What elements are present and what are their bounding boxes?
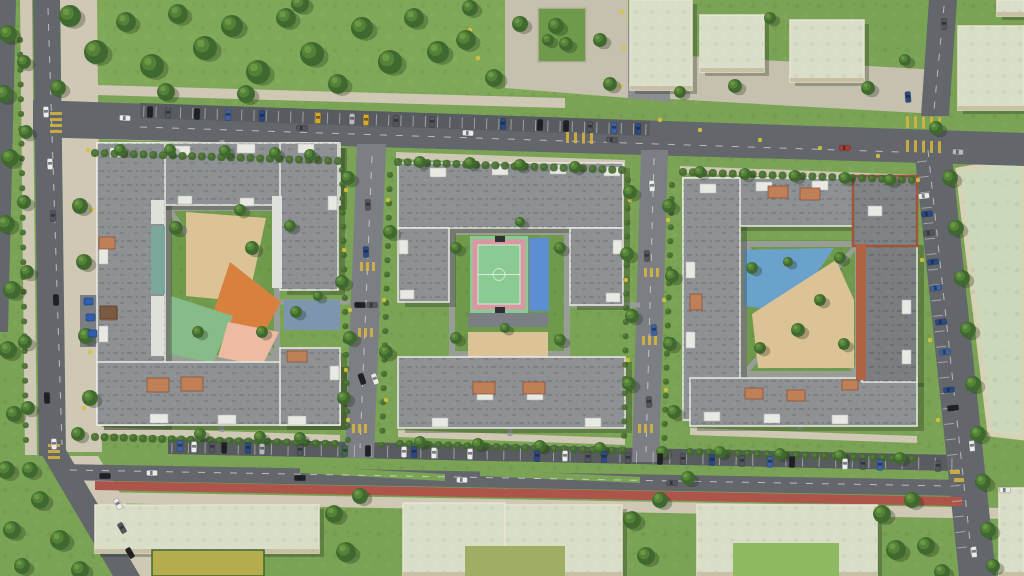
car [939, 349, 951, 356]
hedge-bush-highlight [697, 449, 701, 453]
car-windshield [466, 131, 469, 135]
tree-canopy-highlight [488, 72, 493, 77]
car [194, 108, 200, 119]
tree-canopy-highlight [286, 222, 290, 226]
tree-canopy-highlight [595, 35, 599, 39]
car-windshield [166, 111, 170, 114]
tree-canopy-highlight [957, 273, 962, 278]
hedge-bush-highlight [851, 454, 855, 458]
flower-bush [876, 154, 880, 158]
hedge-bush-highlight [384, 286, 387, 289]
hedge-bush-highlight [622, 419, 625, 422]
car-windshield [602, 455, 606, 458]
tree-canopy-highlight [627, 311, 631, 315]
tree-canopy-highlight [840, 340, 844, 344]
car-windshield [843, 146, 846, 150]
car-windshield [123, 116, 126, 120]
hedge-bush-highlight [274, 439, 278, 443]
flower-bush [818, 146, 822, 150]
car-windshield [366, 203, 370, 206]
tree-canopy-highlight [978, 477, 983, 482]
hedge-bush-highlight [131, 151, 135, 155]
hedge-bush-highlight [465, 443, 469, 447]
car-windshield [768, 460, 772, 463]
car-windshield [790, 460, 794, 463]
tree-canopy-highlight [730, 81, 734, 85]
hedge-bush-highlight [735, 451, 739, 455]
car [562, 450, 568, 461]
car [221, 442, 227, 453]
tree-canopy-highlight [339, 393, 343, 397]
pale-roof-texture [700, 15, 764, 72]
hedge-bush-highlight [609, 167, 613, 171]
hedge-bush-highlight [667, 253, 670, 256]
hedge-bush-highlight [668, 225, 671, 228]
yellow-road-marking [364, 328, 367, 337]
car [53, 294, 59, 305]
car [367, 302, 378, 308]
tree-canopy-highlight [166, 146, 170, 150]
tree-canopy-highlight [502, 325, 505, 328]
hedge-bush-highlight [189, 153, 193, 157]
tree-canopy-highlight [536, 442, 540, 446]
tree-canopy-highlight [452, 244, 456, 248]
tree-canopy-highlight [171, 223, 175, 227]
roof-texture [853, 176, 917, 246]
pale-roof-texture [630, 0, 692, 90]
car-windshield [358, 303, 361, 307]
tree-canopy-highlight [21, 127, 25, 131]
tree-canopy-highlight [863, 83, 867, 87]
hedge-bush-highlight [150, 152, 154, 156]
flower-bush [344, 368, 348, 372]
hedge-bush-highlight [20, 230, 23, 233]
car [47, 158, 53, 169]
tree-canopy-highlight [741, 170, 745, 174]
car [839, 145, 850, 151]
hedge-bush-highlight [819, 174, 823, 178]
hedge-bush-highlight [780, 172, 784, 176]
yellow-road-marking [938, 141, 941, 153]
tree-canopy-highlight [571, 163, 575, 167]
car-windshield [178, 444, 182, 447]
car [259, 443, 265, 454]
car-windshield [260, 114, 264, 117]
yellow-road-marking [364, 424, 367, 433]
tree-canopy-highlight [465, 3, 470, 8]
entrance-canopy [690, 294, 702, 310]
tree-canopy-highlight [88, 44, 95, 51]
car [393, 115, 399, 126]
flower-bush [346, 418, 350, 422]
car [147, 106, 153, 117]
hedge-bush-highlight [513, 445, 517, 449]
car-windshield [192, 445, 196, 448]
hedge-bush-highlight [687, 449, 691, 453]
hedge-bush-highlight [666, 309, 669, 312]
car-windshield [103, 474, 106, 478]
tree-canopy-highlight [596, 444, 600, 448]
hedge-bush-highlight [92, 150, 96, 154]
car-windshield [956, 150, 959, 154]
yellow-road-marking [644, 424, 647, 433]
car-windshield [468, 452, 472, 455]
roof-stair-core [178, 196, 192, 204]
hedge-bush-highlight [561, 165, 565, 169]
tree-canopy-highlight [625, 187, 629, 191]
car-windshield [538, 123, 542, 126]
hedge-bush-highlight [19, 112, 22, 115]
tree-canopy-highlight [343, 173, 347, 177]
hedge-bush-highlight [335, 158, 339, 162]
tree-canopy-highlight [271, 149, 275, 153]
car-windshield [612, 126, 616, 129]
hedge-bush-highlight [622, 448, 625, 451]
hedge-bush-highlight [405, 159, 409, 163]
flower-bush [758, 138, 762, 142]
car [456, 477, 467, 483]
facade-strip [272, 196, 282, 288]
hedge-bush-highlight [755, 451, 759, 455]
car [657, 453, 663, 464]
car [411, 446, 417, 457]
roof-stair-core [430, 168, 446, 177]
car-windshield [564, 124, 568, 127]
hedge-bush-highlight [23, 393, 26, 396]
car [44, 392, 50, 403]
hedge-bush-highlight [619, 167, 623, 171]
inner-court [733, 543, 839, 576]
car-windshield [710, 458, 714, 461]
tree-canopy-highlight [696, 168, 700, 172]
tree-canopy-highlight [836, 452, 840, 456]
roof-stair-core [700, 184, 716, 193]
tree-canopy-highlight [667, 271, 671, 275]
hedge-bush-highlight [453, 161, 457, 165]
car-windshield [588, 125, 592, 128]
car [363, 114, 369, 125]
tree-canopy-highlight [247, 243, 251, 247]
pale-roof-texture [958, 26, 1024, 110]
pale-roof-texture [95, 505, 319, 553]
hedge-bush-highlight [397, 441, 401, 445]
car [651, 324, 657, 335]
yellow-road-marking [650, 424, 653, 433]
hedge-bush-highlight [344, 381, 347, 384]
car-windshield [586, 455, 590, 458]
hedge-bush-highlight [23, 378, 26, 381]
hedge-bush-highlight [890, 455, 894, 459]
car-windshield [645, 254, 649, 257]
yellow-road-marking [574, 132, 577, 143]
yellow-road-marking [370, 328, 373, 337]
yellow-road-marking [372, 262, 375, 271]
roof-stair-core [902, 300, 911, 314]
roof-stair-core [764, 414, 780, 423]
tree-canopy-highlight [196, 430, 200, 434]
tree-canopy-highlight [551, 21, 556, 26]
hedge-bush-highlight [226, 438, 230, 442]
car-windshield [298, 476, 301, 480]
hedge-bush-highlight [346, 438, 349, 441]
car-windshield [936, 464, 940, 467]
roof-stair-core [99, 248, 108, 264]
tree-canopy-highlight [332, 77, 338, 83]
hedge-bush-highlight [22, 319, 25, 322]
yellow-road-marking [50, 112, 62, 115]
hedge-bush-highlight [434, 160, 438, 164]
car [935, 460, 941, 471]
hedge-bush-highlight [590, 166, 594, 170]
hedge-bush-highlight [541, 164, 545, 168]
flower-bush [662, 298, 666, 302]
tree-canopy-highlight [776, 450, 780, 454]
tree-canopy-highlight [664, 201, 668, 205]
tree-canopy-highlight [622, 249, 626, 253]
roof-stair-core [237, 144, 255, 153]
car [119, 115, 130, 121]
yellow-road-marking [648, 336, 651, 345]
hedge-bush-highlight [571, 446, 575, 450]
car [297, 444, 303, 455]
hedge-bush-highlight [625, 220, 628, 223]
yellow-road-marking [590, 133, 593, 144]
car [401, 446, 407, 457]
hedge-bush-highlight [668, 239, 671, 242]
yellow-road-marking [654, 336, 657, 345]
car-windshield [970, 444, 974, 447]
hedge-bush-highlight [383, 315, 386, 318]
hedge-bush-highlight [92, 434, 96, 438]
hedge-bush-highlight [21, 245, 24, 248]
hedge-bush-highlight [341, 224, 344, 227]
hedge-bush-highlight [664, 351, 667, 354]
car-windshield [972, 550, 976, 553]
inner-court [465, 546, 565, 576]
pale-facade-edge [997, 12, 1024, 16]
car [296, 125, 307, 131]
tree-canopy-highlight [416, 438, 420, 442]
tree-canopy-highlight [194, 328, 198, 332]
hedge-bush-highlight [236, 438, 240, 442]
yellow-road-marking [644, 268, 647, 277]
flower-bush [88, 350, 92, 354]
yellow-road-marking [642, 336, 645, 345]
tree-canopy-highlight [937, 567, 942, 572]
hedge-bush-highlight [381, 400, 384, 403]
tree-canopy-highlight [516, 161, 520, 165]
car-windshield [54, 298, 58, 301]
car-windshield [148, 110, 152, 113]
hedge-bush-highlight [494, 444, 498, 448]
hedge-bush-highlight [492, 162, 496, 166]
flower-bush [622, 46, 626, 50]
hedge-bush-highlight [664, 379, 667, 382]
tree-canopy-highlight [116, 146, 120, 150]
car-windshield [501, 122, 505, 125]
yellow-road-marking [360, 262, 363, 271]
car [467, 448, 473, 459]
car [952, 149, 963, 155]
hedge-bush-highlight [344, 352, 347, 355]
hedge-bush-highlight [626, 178, 629, 181]
car [177, 440, 183, 451]
car-windshield [460, 478, 463, 482]
car [635, 123, 641, 134]
tree-canopy-highlight [34, 494, 39, 499]
hedge-bush-highlight [666, 295, 669, 298]
car [363, 246, 369, 257]
car [429, 116, 435, 127]
car-windshield [195, 112, 199, 115]
hedge-bush-highlight [24, 438, 27, 441]
flower-bush [920, 258, 924, 262]
car [611, 122, 617, 133]
tree-canopy-highlight [81, 331, 86, 336]
roof-stair-core [288, 416, 306, 425]
tree-canopy-highlight [624, 379, 628, 383]
car [462, 130, 473, 136]
car-windshield [343, 449, 347, 452]
tree-canopy-highlight [63, 9, 70, 16]
car-windshield [364, 118, 368, 121]
tree-canopy-highlight [6, 284, 11, 289]
tree-canopy-highlight [951, 223, 956, 228]
hedge-bush-highlight [745, 451, 749, 455]
pale-roof-texture [999, 488, 1024, 576]
tree-canopy-highlight [53, 83, 58, 88]
yellow-road-marking [50, 124, 62, 127]
car [943, 387, 955, 394]
hedge-bush-highlight [706, 450, 710, 454]
hedge-bush-highlight [445, 443, 449, 447]
roof-texture [280, 143, 338, 290]
tree-canopy-highlight [816, 296, 820, 300]
flower-bush [82, 406, 86, 410]
tree-canopy-highlight [517, 219, 520, 222]
car [99, 473, 110, 479]
hedge-bush-highlight [436, 442, 440, 446]
pale-roof-texture [790, 20, 864, 82]
car [349, 113, 355, 124]
car-windshield [670, 481, 673, 485]
tree-canopy-highlight [676, 88, 680, 92]
yellow-road-marking [650, 268, 653, 277]
hedge-bush-highlight [284, 440, 288, 444]
entrance-canopy [800, 188, 820, 200]
hedge-bush-highlight [600, 166, 604, 170]
flower-bush [664, 388, 668, 392]
roof-texture [690, 378, 917, 426]
hedge-bush-highlight [238, 155, 242, 159]
hedge-bush-highlight [169, 436, 173, 440]
car [355, 302, 366, 308]
flower-bush [348, 308, 352, 312]
tree-canopy-highlight [973, 429, 978, 434]
car [50, 210, 56, 221]
tree-canopy-highlight [460, 33, 466, 39]
car-windshield [563, 454, 567, 457]
car [969, 440, 976, 452]
hedge-bush-highlight [20, 171, 23, 174]
tree-canopy-highlight [381, 347, 385, 351]
hedge-bush-highlight [590, 447, 594, 451]
roof-stair-core [868, 206, 882, 216]
hedge-bush-highlight [340, 182, 343, 185]
car-windshield [222, 446, 226, 449]
car-windshield [432, 451, 436, 454]
hedge-bush-highlight [624, 263, 627, 266]
car [941, 18, 947, 29]
car-windshield [394, 119, 398, 122]
yellow-road-marking [954, 478, 964, 482]
yellow-road-marking [656, 268, 659, 277]
hedge-bush-highlight [561, 446, 565, 450]
tree-canopy-highlight [896, 454, 900, 458]
tree-canopy-highlight [561, 39, 565, 43]
tree-canopy-highlight [968, 379, 973, 384]
hedge-bush-highlight [385, 244, 388, 247]
car [51, 438, 57, 449]
tree-canopy-highlight [160, 86, 165, 91]
tree-canopy-highlight [886, 176, 890, 180]
tree-canopy-highlight [658, 448, 662, 452]
yellow-road-marking [358, 424, 361, 433]
car-windshield [48, 162, 52, 165]
car-windshield [861, 462, 865, 465]
hedge-bush-highlight [760, 172, 764, 176]
hedge-bush-highlight [822, 453, 826, 457]
hedge-bush-highlight [503, 444, 507, 448]
tree-canopy-highlight [515, 19, 520, 24]
tree-canopy-highlight [431, 45, 438, 52]
entrance-canopy [147, 378, 169, 392]
tree-canopy-highlight [296, 434, 300, 438]
tree-canopy-highlight [665, 339, 669, 343]
tree-canopy-highlight [2, 344, 7, 349]
car-windshield [843, 462, 847, 465]
tree-canopy-highlight [556, 336, 560, 340]
hedge-bush-highlight [663, 407, 666, 410]
tree-canopy-highlight [605, 79, 609, 83]
tree-canopy-highlight [408, 11, 414, 17]
car-windshield [626, 456, 630, 459]
tree-canopy-highlight [22, 267, 26, 271]
hedge-bush-highlight [325, 158, 329, 162]
car [43, 106, 49, 117]
car-windshield [364, 250, 368, 253]
hedge-bush-highlight [340, 196, 343, 199]
car-windshield [652, 328, 656, 331]
car [649, 180, 655, 191]
hedge-bush-highlight [385, 272, 388, 275]
car [971, 546, 978, 558]
car [709, 454, 715, 465]
tree-canopy-highlight [120, 15, 126, 21]
tree-canopy-highlight [19, 197, 23, 201]
car-windshield [246, 446, 250, 449]
car-windshield [300, 126, 303, 130]
car [644, 250, 650, 261]
tree-canopy-highlight [556, 244, 560, 248]
yellow-road-marking [950, 470, 960, 474]
tree-canopy-highlight [791, 172, 795, 176]
tree-canopy-highlight [85, 393, 90, 398]
hedge-bush-highlight [809, 174, 813, 178]
hedge-bush-highlight [343, 310, 346, 313]
hedge-bush-highlight [625, 234, 628, 237]
car-windshield [610, 138, 613, 142]
